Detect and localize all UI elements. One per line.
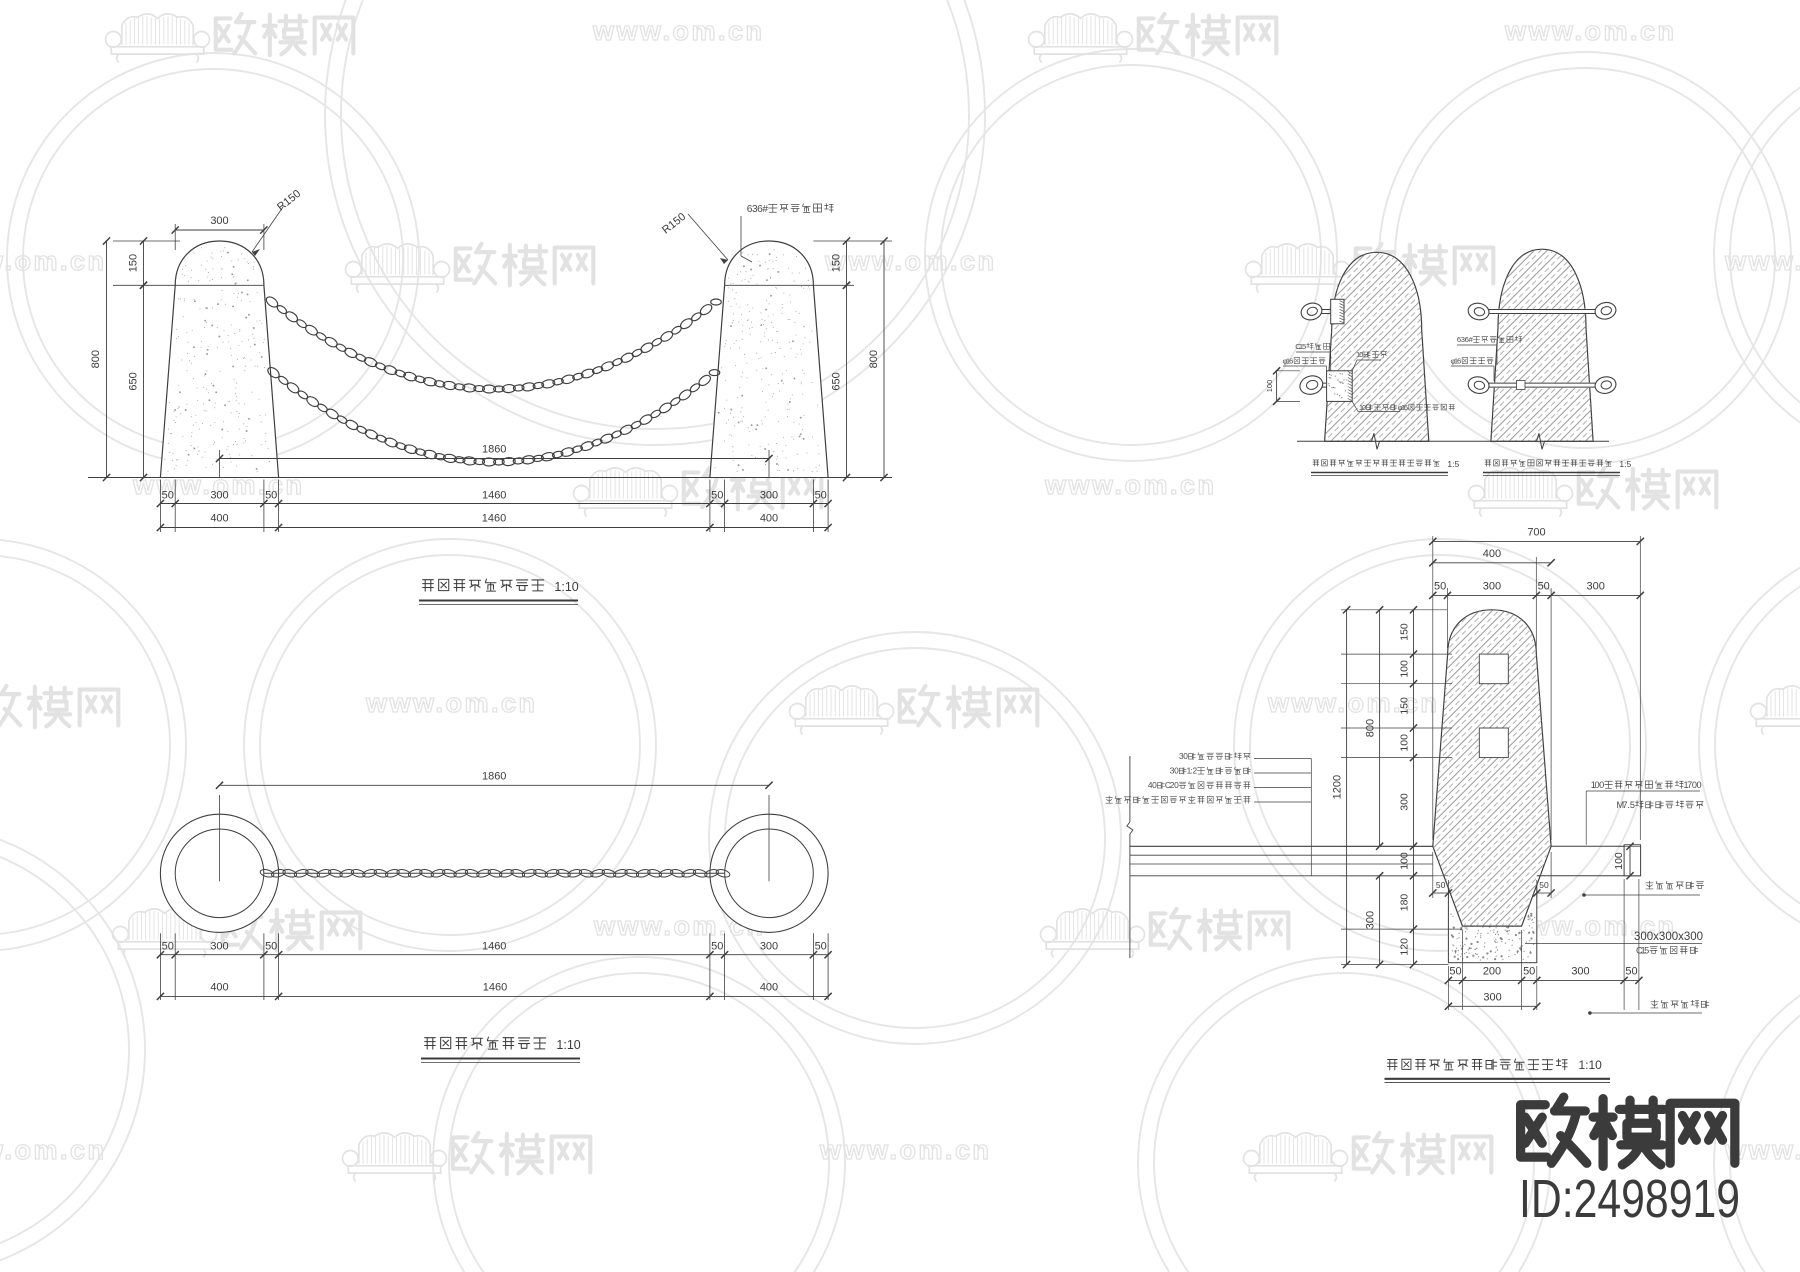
svg-text:300: 300 xyxy=(1483,580,1501,592)
svg-text:0: 0 xyxy=(1599,780,1604,790)
svg-text:50: 50 xyxy=(815,941,827,953)
svg-text:ID:2498919: ID:2498919 xyxy=(1519,1169,1740,1229)
svg-text:50: 50 xyxy=(1539,880,1549,890)
svg-text:300: 300 xyxy=(760,941,778,953)
svg-text:50: 50 xyxy=(815,490,827,502)
svg-text:400: 400 xyxy=(210,513,228,525)
svg-text:50: 50 xyxy=(162,941,174,953)
svg-text:6: 6 xyxy=(1457,356,1461,365)
svg-text:50: 50 xyxy=(711,490,723,502)
svg-text:650: 650 xyxy=(128,372,140,390)
svg-text:50: 50 xyxy=(1436,880,1446,890)
svg-text:800: 800 xyxy=(1365,719,1377,737)
svg-text:100: 100 xyxy=(1399,734,1411,752)
svg-text:0: 0 xyxy=(1697,780,1702,790)
svg-text:300x300x300: 300x300x300 xyxy=(1634,931,1703,943)
svg-text:50: 50 xyxy=(265,490,277,502)
svg-text:300: 300 xyxy=(1399,793,1411,811)
svg-text:300: 300 xyxy=(210,941,228,953)
svg-text:1:5: 1:5 xyxy=(1619,459,1631,469)
svg-text:1460: 1460 xyxy=(483,981,507,993)
svg-text:www.om.cn: www.om.cn xyxy=(1504,16,1677,46)
svg-text:5: 5 xyxy=(1630,800,1635,810)
svg-text:180: 180 xyxy=(1399,894,1411,912)
svg-text:300: 300 xyxy=(210,490,228,502)
svg-text:1860: 1860 xyxy=(482,444,506,456)
svg-text:150: 150 xyxy=(831,254,843,272)
svg-text:300: 300 xyxy=(1587,580,1605,592)
svg-text:www.om.cn: www.om.cn xyxy=(1724,246,1800,276)
svg-text:www.om.cn: www.om.cn xyxy=(0,246,107,276)
svg-text:1460: 1460 xyxy=(482,513,506,525)
svg-text:800: 800 xyxy=(90,350,102,368)
svg-text:www.om.cn: www.om.cn xyxy=(365,688,538,718)
svg-text:300: 300 xyxy=(1483,991,1501,1003)
svg-text:150: 150 xyxy=(1399,623,1411,641)
svg-text:400: 400 xyxy=(210,981,228,993)
svg-text:800: 800 xyxy=(868,350,880,368)
svg-text:150: 150 xyxy=(1399,697,1411,715)
svg-text:#: # xyxy=(762,204,768,215)
svg-text:50: 50 xyxy=(1625,965,1637,977)
svg-text:1860: 1860 xyxy=(482,770,506,782)
svg-text:150: 150 xyxy=(128,254,140,272)
svg-text:1200: 1200 xyxy=(1332,775,1344,799)
svg-text:300: 300 xyxy=(1365,911,1377,929)
svg-text:50: 50 xyxy=(1523,965,1535,977)
svg-text:100: 100 xyxy=(1399,852,1411,870)
svg-text:50: 50 xyxy=(711,941,723,953)
svg-text:1:5: 1:5 xyxy=(1447,459,1459,469)
svg-text:6: 6 xyxy=(1289,356,1293,365)
svg-text:200: 200 xyxy=(1483,965,1501,977)
svg-text:2: 2 xyxy=(1192,766,1197,776)
svg-text:0: 0 xyxy=(1183,751,1188,761)
svg-text:5: 5 xyxy=(1302,342,1306,351)
svg-text:100: 100 xyxy=(1613,852,1625,870)
svg-text:1460: 1460 xyxy=(482,490,506,502)
svg-text:www.om.cn: www.om.cn xyxy=(0,1135,107,1165)
svg-text:#: # xyxy=(1469,335,1474,344)
svg-text:50: 50 xyxy=(1538,580,1550,592)
svg-text:300: 300 xyxy=(1571,965,1589,977)
svg-text:650: 650 xyxy=(831,372,843,390)
svg-text:100: 100 xyxy=(1265,380,1274,393)
svg-text:www.om.cn: www.om.cn xyxy=(592,16,765,46)
svg-text:50: 50 xyxy=(1449,965,1461,977)
svg-text:50: 50 xyxy=(1434,580,1446,592)
svg-text:300: 300 xyxy=(760,490,778,502)
svg-text:www.om.cn: www.om.cn xyxy=(819,1135,992,1165)
svg-text:0: 0 xyxy=(1152,780,1157,790)
svg-text:0: 0 xyxy=(1174,766,1179,776)
svg-text:www.om.cn: www.om.cn xyxy=(824,246,997,276)
svg-text:1:10: 1:10 xyxy=(554,580,578,594)
svg-text:5: 5 xyxy=(1644,945,1649,955)
svg-text:www.om.cn: www.om.cn xyxy=(1044,470,1217,500)
svg-text:1460: 1460 xyxy=(482,941,506,953)
svg-text:1:10: 1:10 xyxy=(556,1038,580,1052)
svg-text:50: 50 xyxy=(265,941,277,953)
svg-text:0: 0 xyxy=(1174,780,1179,790)
svg-text:400: 400 xyxy=(760,513,778,525)
svg-text:0: 0 xyxy=(1359,350,1363,359)
svg-text:1:10: 1:10 xyxy=(1579,1058,1603,1072)
svg-text:6: 6 xyxy=(1404,403,1408,412)
svg-text:400: 400 xyxy=(1483,548,1501,560)
svg-text:100: 100 xyxy=(1399,660,1411,678)
svg-text:700: 700 xyxy=(1527,526,1545,538)
svg-text:120: 120 xyxy=(1399,938,1411,956)
svg-text:300: 300 xyxy=(210,215,228,227)
svg-text:400: 400 xyxy=(760,981,778,993)
svg-text:50: 50 xyxy=(162,490,174,502)
svg-text:0: 0 xyxy=(1362,403,1366,412)
